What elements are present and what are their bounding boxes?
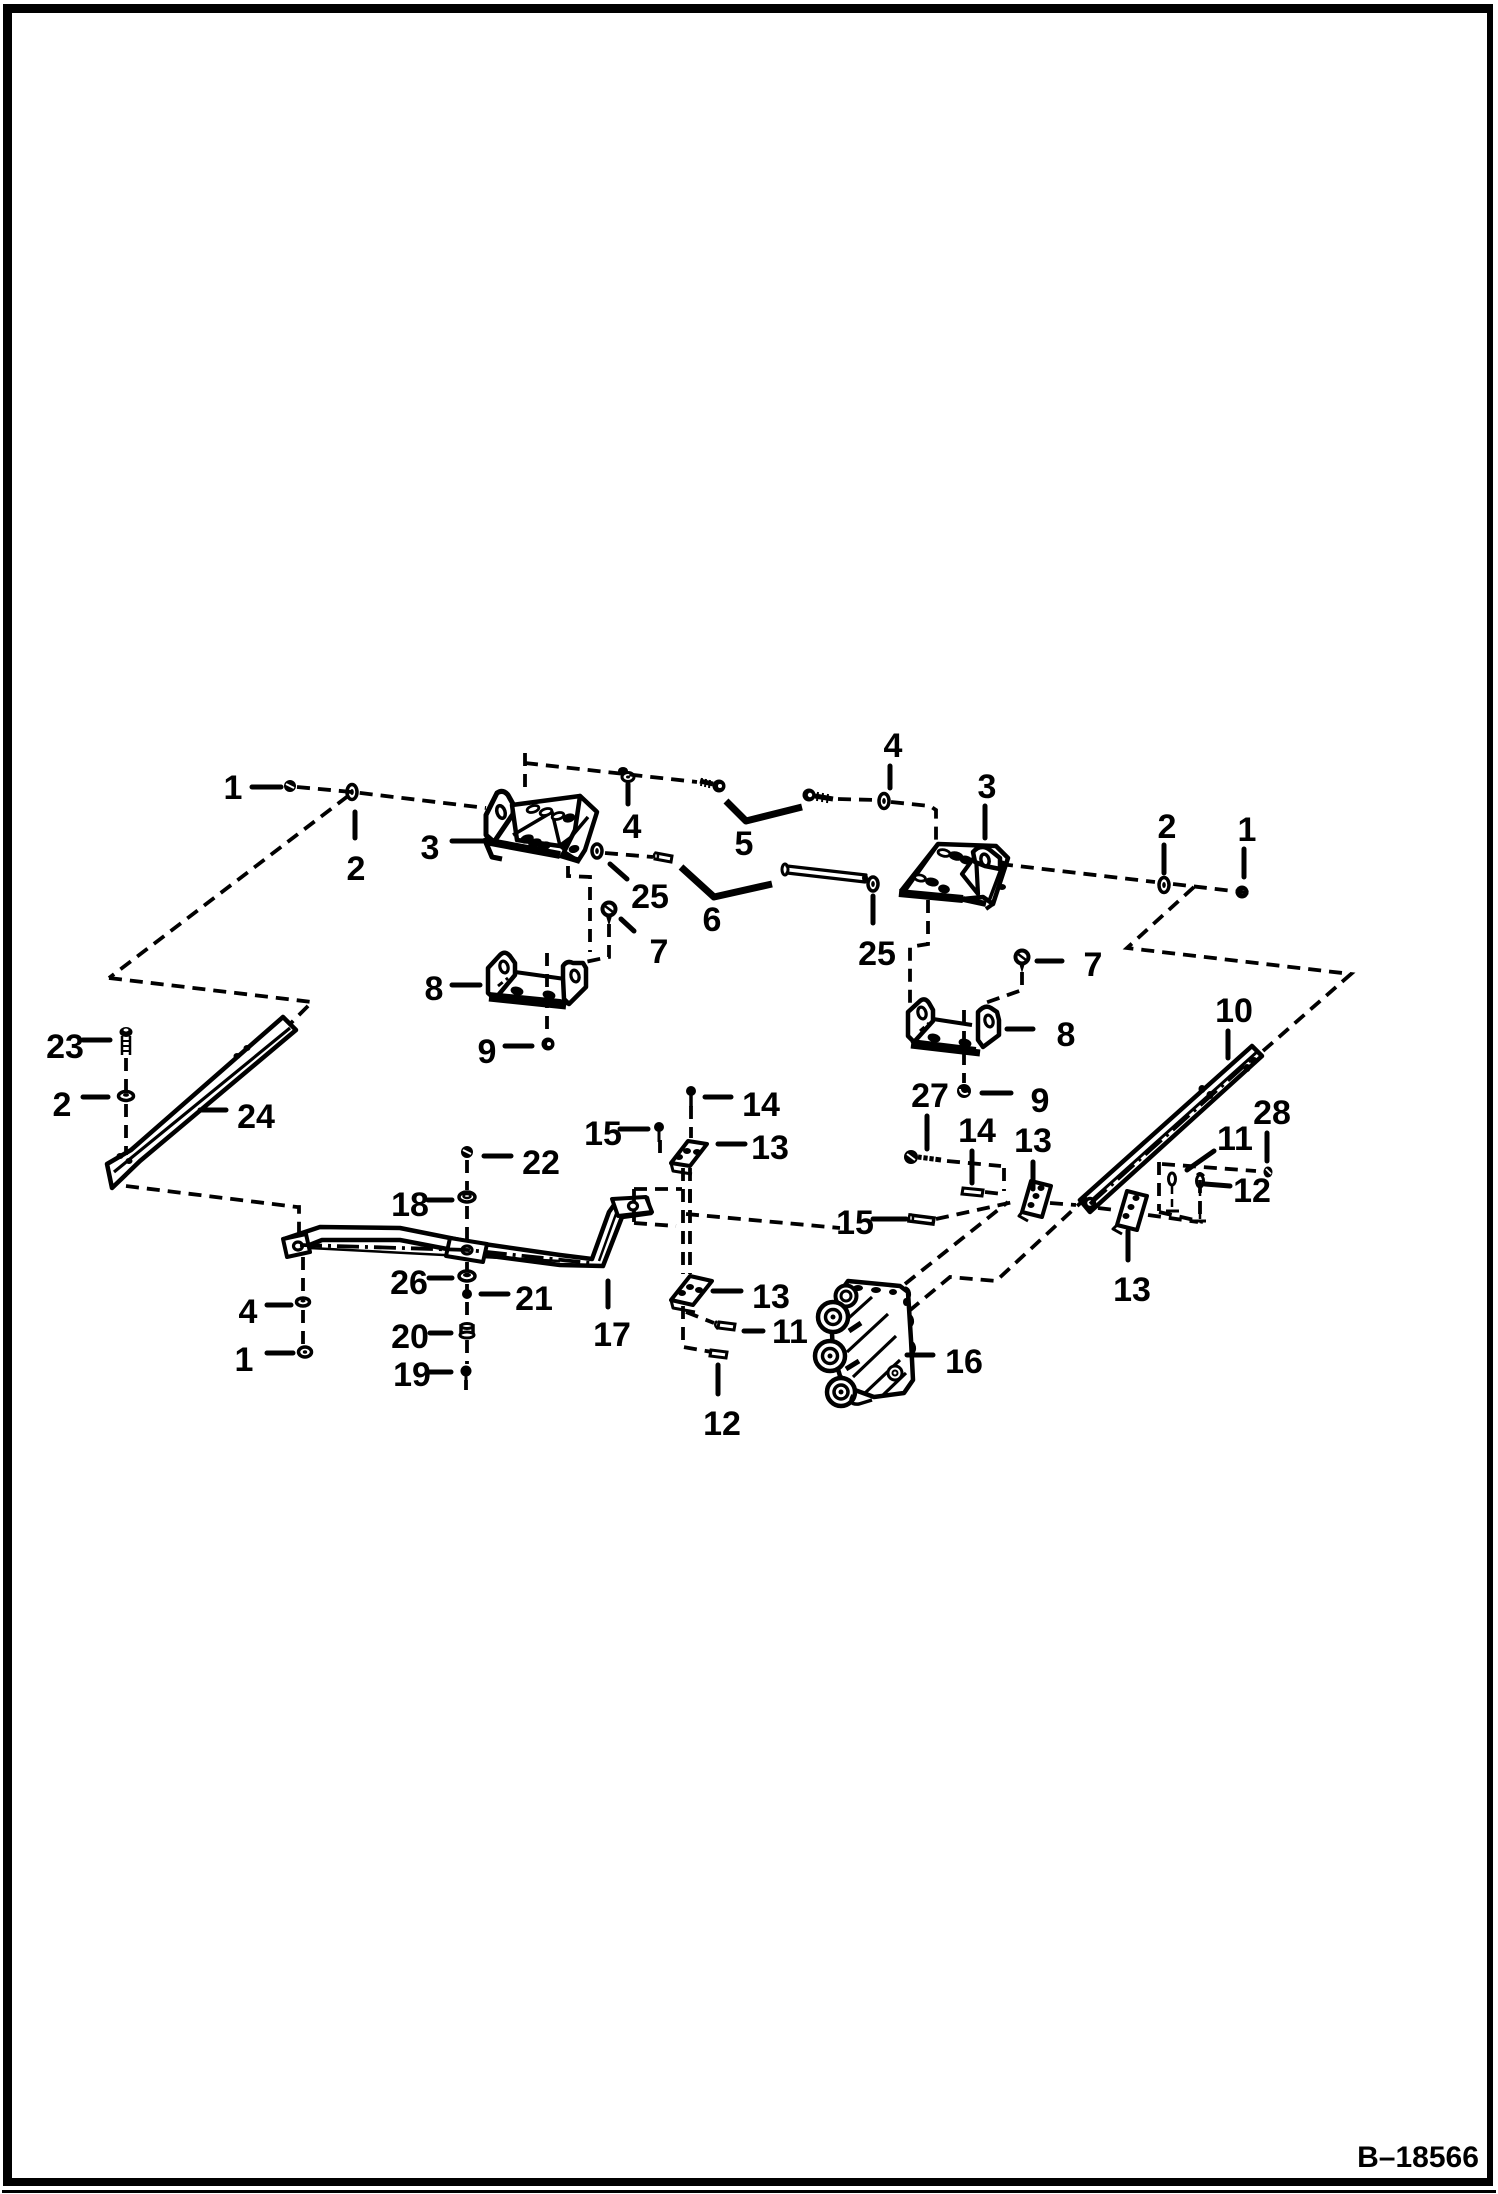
svg-text:B–18566: B–18566 bbox=[1357, 2141, 1479, 2174]
svg-text:11: 11 bbox=[1217, 1120, 1253, 1158]
svg-text:15: 15 bbox=[584, 1115, 622, 1153]
svg-text:13: 13 bbox=[1014, 1122, 1052, 1160]
svg-text:24: 24 bbox=[237, 1098, 275, 1136]
svg-text:14: 14 bbox=[958, 1112, 996, 1150]
svg-text:12: 12 bbox=[1233, 1172, 1271, 1210]
svg-text:6: 6 bbox=[703, 901, 722, 939]
svg-text:10: 10 bbox=[1215, 992, 1253, 1030]
svg-text:1: 1 bbox=[1238, 811, 1257, 849]
svg-text:9: 9 bbox=[1031, 1082, 1050, 1120]
svg-text:7: 7 bbox=[1084, 946, 1103, 984]
svg-text:11: 11 bbox=[772, 1313, 808, 1351]
svg-text:8: 8 bbox=[425, 970, 444, 1008]
svg-text:22: 22 bbox=[522, 1144, 560, 1182]
svg-text:4: 4 bbox=[239, 1293, 258, 1331]
svg-text:28: 28 bbox=[1253, 1094, 1291, 1132]
svg-text:19: 19 bbox=[393, 1356, 431, 1394]
svg-text:4: 4 bbox=[623, 808, 642, 846]
svg-text:17: 17 bbox=[593, 1316, 631, 1354]
svg-text:13: 13 bbox=[1113, 1271, 1151, 1309]
svg-text:26: 26 bbox=[390, 1264, 428, 1302]
svg-text:1: 1 bbox=[235, 1341, 254, 1379]
svg-text:1: 1 bbox=[224, 769, 243, 807]
svg-text:23: 23 bbox=[46, 1028, 84, 1066]
svg-text:7: 7 bbox=[650, 933, 669, 971]
svg-text:3: 3 bbox=[421, 829, 440, 867]
svg-text:4: 4 bbox=[884, 727, 903, 765]
svg-text:8: 8 bbox=[1057, 1016, 1076, 1054]
svg-text:2: 2 bbox=[1158, 808, 1177, 846]
svg-text:2: 2 bbox=[347, 850, 366, 888]
svg-text:16: 16 bbox=[945, 1343, 983, 1381]
svg-text:3: 3 bbox=[978, 768, 997, 806]
svg-text:5: 5 bbox=[735, 825, 754, 863]
svg-text:27: 27 bbox=[911, 1077, 949, 1115]
svg-text:12: 12 bbox=[703, 1405, 741, 1443]
svg-text:14: 14 bbox=[742, 1086, 780, 1124]
svg-text:25: 25 bbox=[858, 935, 896, 973]
svg-text:15: 15 bbox=[836, 1204, 874, 1242]
svg-text:25: 25 bbox=[631, 878, 669, 916]
svg-text:18: 18 bbox=[391, 1186, 429, 1224]
svg-text:2: 2 bbox=[53, 1086, 72, 1124]
svg-text:21: 21 bbox=[515, 1280, 553, 1318]
svg-text:9: 9 bbox=[478, 1033, 497, 1071]
svg-text:20: 20 bbox=[391, 1318, 429, 1356]
svg-text:13: 13 bbox=[752, 1278, 790, 1316]
svg-text:13: 13 bbox=[751, 1129, 789, 1167]
